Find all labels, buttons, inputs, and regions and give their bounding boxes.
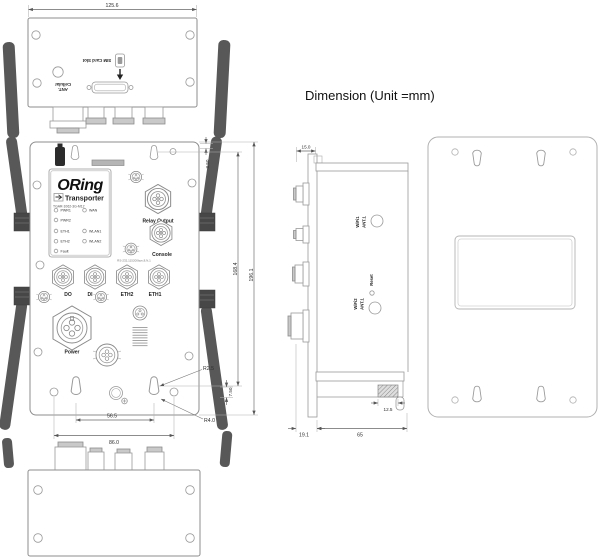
connector-screw: [129, 86, 133, 90]
dim-keyhole-span-h: 56.5: [107, 414, 117, 420]
antenna-lower-left: [0, 287, 30, 431]
port-label: DI: [88, 292, 94, 298]
keyhole-slot: [150, 145, 158, 159]
led-label: ETH2: [61, 240, 70, 244]
dim-keyhole-span-v: 168.4: [233, 262, 239, 275]
antenna-upper-left: [5, 136, 30, 231]
wifi1-label: WiFi1: [355, 216, 360, 228]
dim-radius-small: R2.5: [203, 366, 214, 372]
width-dim-label: 125.6: [106, 3, 119, 9]
mount-hole: [452, 397, 458, 403]
wifi1-ant-hole: [371, 215, 383, 227]
mount-hole: [452, 149, 458, 155]
screw-hole: [33, 181, 41, 189]
technical-drawing: Dimension (Unit =mm) 125.6 SIM Card Slot…: [0, 0, 600, 557]
antenna-mount-hole: [53, 67, 63, 77]
cellular-ant-label-2: ANT.: [58, 87, 68, 92]
led-label: PWR2: [61, 218, 71, 222]
port-label: DO: [64, 292, 72, 298]
reset-hole: [370, 291, 374, 295]
wifi2-ant-label: ANT.1: [360, 298, 365, 310]
screw-hole: [188, 179, 196, 187]
dim-flange-depth: 15.0: [302, 145, 311, 150]
dim-overall-height: 196.1: [249, 268, 255, 281]
cellular-ant-label-1: Cellular: [55, 82, 71, 87]
console-spec: RS-232,115200bps,8,N,1: [117, 259, 151, 263]
led-label: WAN: [89, 209, 98, 213]
top-view-connectors: [50, 107, 165, 133]
antenna-upper-right: [199, 136, 223, 231]
port-label: ETH1: [149, 292, 162, 298]
dim-radius-large: R4.0: [204, 418, 215, 424]
bottom-view: [2, 431, 233, 556]
wifi1-ant-label: ANT.1: [362, 216, 367, 228]
wifi2-label: WiFi2: [353, 298, 358, 310]
dimension-drawing-page: Dimension (Unit =mm) 125.6 SIM Card Slot…: [0, 0, 600, 557]
keyhole-slot: [473, 386, 482, 402]
mount-hole: [570, 149, 576, 155]
led-label: WLAN1: [89, 229, 101, 233]
keyhole-slot: [473, 150, 482, 166]
antenna-top-left: [2, 42, 19, 138]
slot-edge: [92, 160, 124, 166]
brand-logo: ORing: [57, 177, 103, 194]
mount-hole: [186, 534, 195, 543]
mount-hole: [32, 31, 40, 39]
top-view: 125.6 SIM Card Slot Cellular ANT.: [2, 3, 230, 138]
mount-hole: [33, 79, 41, 87]
power-label: Power: [64, 350, 79, 356]
led-label: Fault: [61, 249, 69, 253]
mount-hole: [186, 486, 195, 495]
mount-hole: [170, 388, 178, 396]
mount-hole: [50, 388, 58, 396]
screw-hole: [185, 352, 193, 360]
keyhole-slot: [71, 377, 81, 395]
keyhole-slot: [71, 145, 79, 159]
antenna-bottom-right: [219, 431, 232, 468]
screw-hole: [34, 348, 42, 356]
bottom-view-connectors: [55, 442, 164, 470]
small-connector: [133, 306, 147, 320]
wifi2-ant-hole: [369, 302, 381, 314]
front-view: ORing Transporter TGAR-1062-3G-M12 PWR1 …: [0, 136, 258, 446]
reset-label: Reset: [369, 274, 374, 286]
top-flange: [316, 163, 408, 171]
antenna-bottom-left: [2, 438, 15, 469]
dim-mount-width: 86.0: [109, 440, 119, 446]
clip-tab: [396, 397, 404, 410]
page-title: Dimension (Unit =mm): [305, 88, 435, 103]
series-label: Transporter: [65, 196, 104, 203]
sim-slot-icon-inner: [118, 57, 123, 64]
led-label: ETH1: [61, 229, 70, 233]
antenna-lower-right: [199, 290, 229, 431]
dim-front-offset: 19.1: [299, 433, 309, 439]
din-clip: [378, 385, 398, 397]
keyhole-slot: [149, 377, 159, 395]
connector-screw: [87, 86, 91, 90]
bottom-flange: [316, 372, 404, 381]
dim-bottom-offset: 7.50: [228, 387, 233, 396]
led-label: WLAN2: [89, 240, 101, 244]
side-view: 15.0 WiFi1 ANT.1 Reset: [288, 145, 408, 439]
led-label: PWR1: [61, 209, 71, 213]
screw-hole: [36, 261, 44, 269]
dim-body-depth: 65: [357, 433, 363, 439]
dim-top-offset: 3.50: [205, 159, 210, 168]
keyhole-slot: [537, 150, 546, 166]
sim-slot-label: SIM Card Slot: [82, 58, 111, 63]
keyhole-slot: [537, 386, 546, 402]
name-plate: ORing Transporter TGAR-1062-3G-M12 PWR1 …: [49, 169, 111, 257]
dim-clip-width: 12.5: [384, 407, 393, 412]
antenna-top-right: [213, 40, 230, 138]
screw-hole: [170, 149, 176, 155]
mount-hole: [186, 78, 194, 86]
console-label: Console: [152, 252, 172, 258]
mount-hole: [34, 486, 43, 495]
cellular-ant-connector: [92, 82, 128, 93]
mount-hole: [34, 534, 43, 543]
mount-hole: [186, 31, 194, 39]
antenna-bolt: [55, 147, 65, 166]
mount-hole: [570, 397, 576, 403]
side-connectors: [288, 183, 309, 342]
rear-view: [428, 137, 597, 417]
port-label: ETH2: [121, 292, 134, 298]
